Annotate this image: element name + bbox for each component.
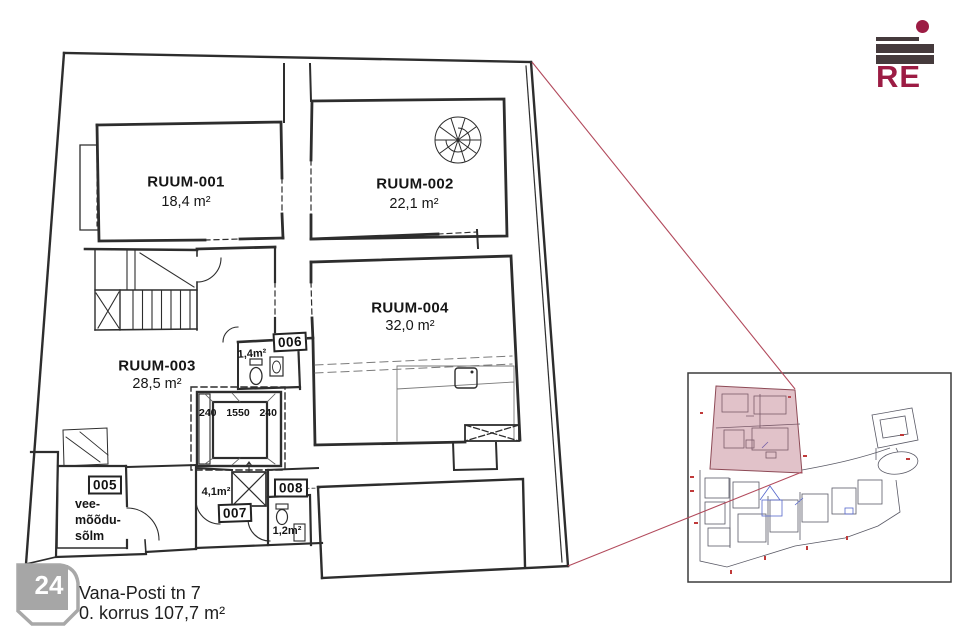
room-label-ruum-004: RUUM-004 bbox=[371, 300, 448, 317]
room-area-008: 1,2m² bbox=[273, 525, 302, 537]
footer-address: Vana-Posti tn 7 bbox=[79, 583, 201, 604]
room-area-007: 4,1m² bbox=[202, 486, 231, 498]
lift-dimensions: 240 1550 240 bbox=[199, 407, 277, 419]
floor-plan-drawing bbox=[0, 0, 960, 640]
logo-text: RE bbox=[876, 62, 921, 92]
room-label-ruum-002: RUUM-002 bbox=[376, 176, 453, 193]
lift-dim-left: 240 bbox=[199, 407, 217, 419]
logo-dot-icon bbox=[916, 20, 929, 33]
inset-highlight-region bbox=[710, 386, 802, 473]
room-area-006: 1,4m² bbox=[237, 347, 266, 360]
room-area-ruum-004: 32,0 m² bbox=[385, 318, 434, 334]
room-area-ruum-003: 28,5 m² bbox=[132, 376, 181, 392]
lift-shaft bbox=[191, 387, 285, 470]
room-label-ruum-001: RUUM-001 bbox=[147, 174, 224, 191]
room-005-name-line1: vee- bbox=[75, 496, 121, 512]
logo-thin-bar bbox=[876, 37, 919, 41]
room-area-ruum-002: 22,1 m² bbox=[389, 196, 438, 212]
lift-dim-width: 1550 bbox=[226, 407, 249, 419]
corridor-walls bbox=[197, 230, 478, 341]
room-005-name-line2: mõõdu- bbox=[75, 512, 121, 528]
room-label-ruum-003: RUUM-003 bbox=[118, 358, 195, 375]
lift-dim-right: 240 bbox=[259, 407, 277, 419]
room-number-007: 007 bbox=[218, 503, 253, 523]
room-number-008: 008 bbox=[274, 479, 308, 498]
logo-bar-1 bbox=[876, 44, 934, 53]
shaft-x-icon bbox=[232, 462, 266, 506]
ruum-004-walls bbox=[311, 256, 520, 470]
re-logo: RE bbox=[876, 20, 938, 96]
room-area-ruum-001: 18,4 m² bbox=[161, 194, 210, 210]
room-number-006: 006 bbox=[273, 332, 308, 353]
inset-map bbox=[688, 373, 951, 582]
room-number-005: 005 bbox=[88, 476, 122, 495]
page-number: 24 bbox=[26, 570, 72, 601]
page: RUUM-001 18,4 m² RUUM-002 22,1 m² RUUM-0… bbox=[0, 0, 960, 640]
footer-floor-info: 0. korrus 107,7 m² bbox=[79, 603, 225, 624]
room-005-name-line3: sõlm bbox=[75, 528, 121, 544]
spiral-staircase-icon bbox=[435, 117, 481, 163]
room-005-name: vee- mõõdu- sõlm bbox=[75, 496, 121, 544]
staircase bbox=[85, 249, 221, 330]
